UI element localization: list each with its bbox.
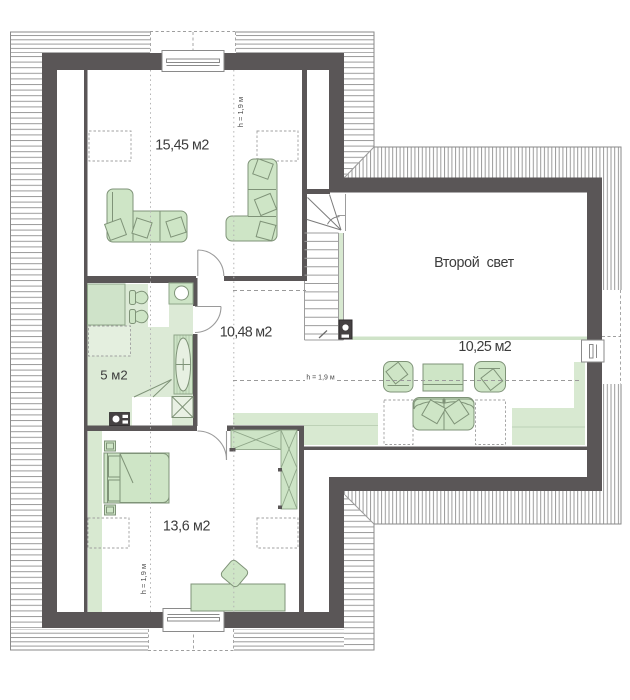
svg-text:Второй свет: Второй свет — [434, 255, 514, 271]
svg-text:13,6 м2: 13,6 м2 — [163, 519, 211, 535]
svg-text:10,48 м2: 10,48 м2 — [220, 325, 273, 341]
svg-text:10,25 м2: 10,25 м2 — [458, 339, 511, 355]
svg-text:h = 1,9 м: h = 1,9 м — [236, 97, 245, 127]
svg-text:15,45 м2: 15,45 м2 — [155, 138, 209, 154]
svg-text:h = 1,9 м: h = 1,9 м — [139, 564, 148, 594]
svg-text:5 м2: 5 м2 — [100, 367, 127, 382]
svg-text:h = 1,9 м: h = 1,9 м — [306, 375, 335, 382]
